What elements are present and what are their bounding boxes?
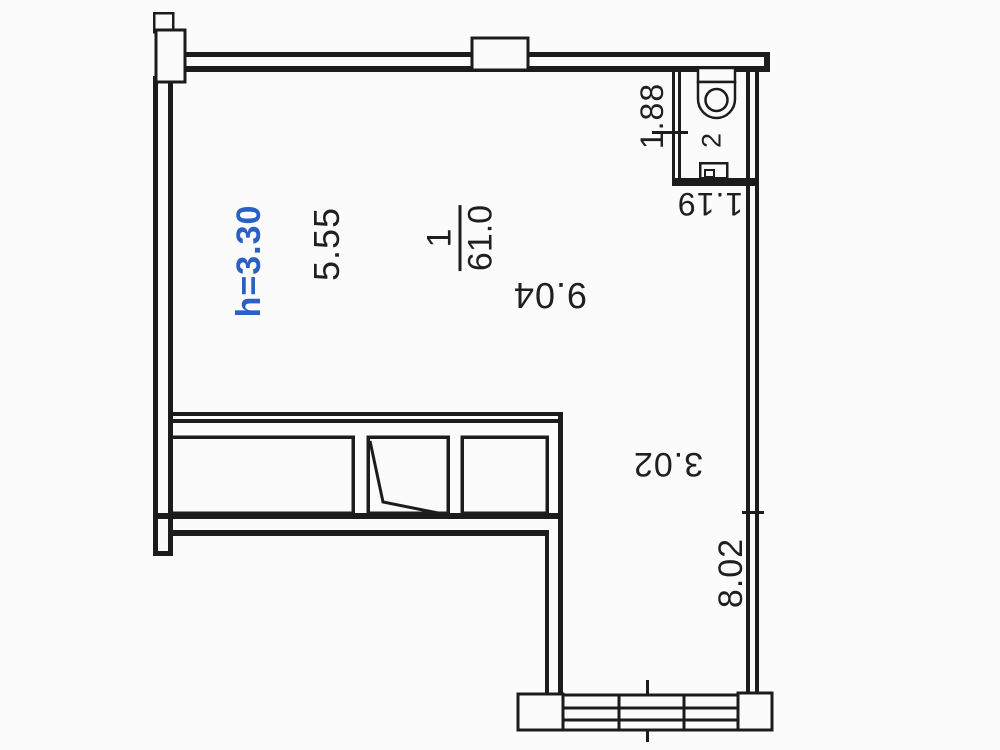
bathroom-door-icon bbox=[700, 163, 727, 178]
dim-3-02: 3.02 bbox=[633, 447, 703, 481]
window-pier-right bbox=[738, 693, 772, 730]
closet-c bbox=[462, 437, 547, 513]
dim-5-55: 5.55 bbox=[309, 207, 345, 281]
top-window-icon bbox=[472, 38, 528, 70]
walls bbox=[153, 52, 770, 742]
floor-plan-drawing bbox=[0, 0, 1000, 750]
room-number: 1 bbox=[423, 229, 457, 248]
corner-block bbox=[156, 30, 185, 82]
bathroom-wall-left bbox=[672, 70, 681, 180]
dim-9-04: 9.04 bbox=[513, 277, 587, 313]
toilet-icon bbox=[698, 68, 735, 118]
corridor-wall bbox=[545, 530, 563, 695]
closet-a bbox=[171, 437, 353, 513]
closet-b bbox=[368, 437, 448, 513]
bathroom-number: 2 bbox=[699, 132, 726, 148]
dim-1-88: 1.88 bbox=[636, 83, 668, 149]
floor-plan: h=3.30 5.55 1 61.0 9.04 1.88 2 1.19 3.02… bbox=[0, 0, 1000, 750]
room-label: 1 61.0 bbox=[423, 205, 498, 271]
ceiling-height-label: h=3.30 bbox=[232, 205, 266, 318]
bottom-window-icon bbox=[563, 695, 738, 730]
dim-1-19: 1.19 bbox=[677, 188, 743, 220]
lower-wall bbox=[155, 513, 563, 536]
window-pier-left bbox=[518, 694, 563, 730]
dimension-tick-right-wall bbox=[742, 511, 764, 514]
room-area: 61.0 bbox=[464, 205, 498, 271]
dim-8-02: 8.02 bbox=[714, 538, 748, 608]
